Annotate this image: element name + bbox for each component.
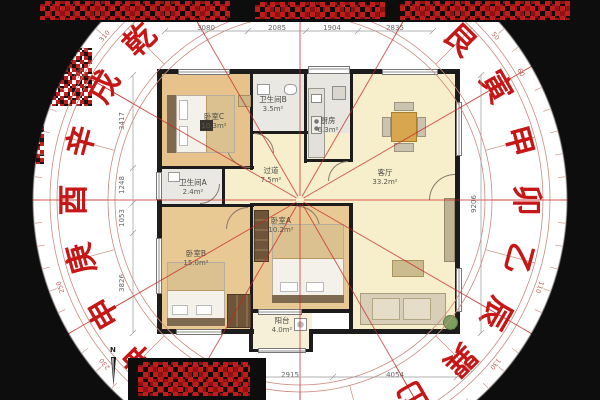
- washing-machine: [294, 318, 307, 331]
- bottom-censor-patch: [128, 358, 266, 400]
- svg-text:60: 60: [515, 67, 526, 78]
- dim-top-1: 3080: [188, 24, 224, 32]
- sink: [257, 84, 270, 95]
- svg-text:卯: 卯: [508, 185, 544, 216]
- window: [258, 348, 306, 353]
- pillow: [306, 282, 324, 292]
- bed-headboard: [167, 318, 225, 326]
- tv-cabinet: [444, 198, 455, 262]
- dim-bottom-2: 2915: [272, 371, 308, 379]
- wall: [350, 72, 353, 162]
- dim-left-4: 3826: [118, 265, 126, 301]
- svg-text:甲: 甲: [497, 122, 540, 161]
- dim-top-4: 2835: [377, 24, 413, 32]
- svg-text:巳: 巳: [391, 372, 436, 400]
- svg-text:辛: 辛: [60, 122, 103, 161]
- north-arrow: N: [110, 346, 116, 386]
- censored-text-mosaic: [0, 48, 92, 106]
- svg-text:50: 50: [490, 30, 501, 41]
- pillow: [179, 100, 188, 120]
- dim-left-3: 1053: [118, 200, 126, 236]
- wall: [250, 72, 253, 170]
- svg-text:乾: 乾: [117, 17, 164, 64]
- svg-text:N: N: [110, 346, 116, 354]
- dining-chair: [394, 102, 414, 111]
- svg-text:230: 230: [98, 357, 112, 372]
- pillow: [179, 126, 188, 146]
- room-corner-hall: [224, 168, 252, 207]
- censored-text-mosaic: [0, 164, 24, 334]
- dim-bottom-3: 4054: [377, 371, 413, 379]
- sofa-cushion: [372, 298, 400, 320]
- svg-text:庚: 庚: [60, 239, 103, 278]
- stove: [311, 116, 322, 134]
- tv-unit: [200, 120, 213, 131]
- wall: [310, 329, 460, 334]
- svg-text:110: 110: [534, 280, 546, 294]
- window: [156, 172, 162, 200]
- fengshui-floorplan-image: 卧室C10.3m² 卫生间B3.5m² 厨房6.3m² 客厅33.2m² 过道7…: [0, 0, 600, 400]
- dim-right-1: 9206: [470, 186, 478, 222]
- bed-headboard: [167, 95, 176, 153]
- fridge: [332, 86, 346, 100]
- svg-text:寅: 寅: [472, 65, 519, 110]
- window: [178, 69, 230, 75]
- svg-text:艮: 艮: [436, 17, 484, 65]
- window: [382, 69, 438, 75]
- dining-chair: [394, 143, 414, 152]
- window: [308, 66, 350, 74]
- dim-top-2: 2085: [259, 24, 295, 32]
- dim-left-2: 1248: [118, 167, 126, 203]
- sliding-door: [258, 309, 302, 315]
- sofa-cushion: [403, 298, 431, 320]
- blanket: [273, 225, 343, 259]
- censored-text-mosaic: [0, 106, 44, 164]
- pillow: [280, 282, 298, 292]
- nightstand: [238, 95, 251, 107]
- svg-text:130: 130: [488, 357, 502, 372]
- svg-text:250: 250: [54, 280, 66, 294]
- wardrobe: [254, 210, 269, 262]
- svg-text:辰: 辰: [472, 291, 519, 336]
- window: [176, 329, 222, 335]
- bed-headboard: [272, 295, 344, 303]
- room-bathroom-b: [252, 72, 306, 133]
- dining-chair: [417, 117, 426, 137]
- top-censor-bar: [0, 0, 600, 22]
- toilet: [284, 84, 297, 95]
- wall: [160, 204, 254, 207]
- svg-text:乙: 乙: [497, 239, 540, 278]
- window: [156, 238, 162, 294]
- svg-text:酉: 酉: [56, 185, 92, 216]
- censored-text-mosaic: [0, 334, 24, 400]
- dining-chair: [382, 117, 391, 137]
- dim-top-3: 1904: [314, 24, 350, 32]
- coffee-table: [392, 260, 424, 277]
- wall: [160, 166, 254, 169]
- dim-left-1: 3417: [118, 103, 126, 139]
- svg-text:310: 310: [98, 29, 112, 44]
- pillow: [196, 305, 212, 315]
- blanket: [168, 263, 224, 291]
- pillow: [172, 305, 188, 315]
- window: [456, 268, 462, 312]
- svg-text:巽: 巽: [436, 336, 483, 383]
- svg-text:申: 申: [81, 291, 128, 336]
- wardrobe: [227, 294, 251, 328]
- wall: [157, 69, 162, 334]
- dining-table: [391, 112, 417, 142]
- sink: [168, 172, 180, 182]
- window: [456, 102, 462, 156]
- kitchen-sink: [311, 94, 322, 103]
- plant: [443, 315, 458, 330]
- wall: [222, 166, 225, 207]
- wall: [304, 72, 307, 133]
